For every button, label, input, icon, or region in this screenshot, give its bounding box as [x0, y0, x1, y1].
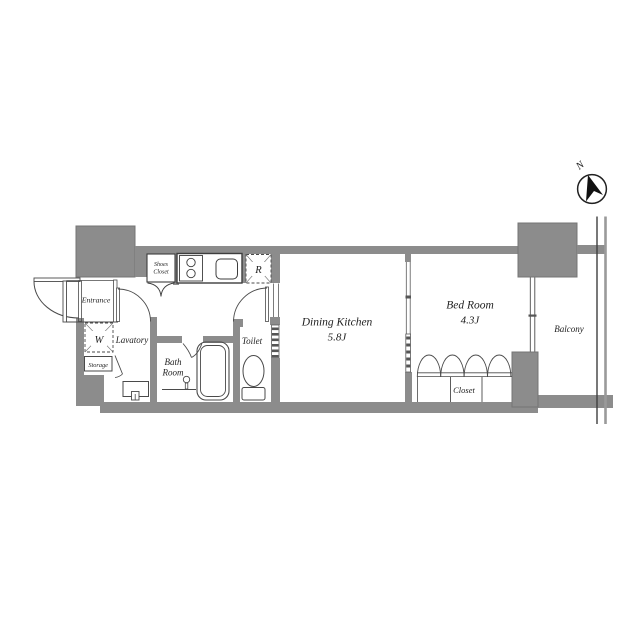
wall-partition-top-block	[405, 254, 411, 262]
label-dining-kitchen-size: 5.8J	[328, 332, 348, 344]
window-tick	[529, 315, 537, 317]
storage-door-leaf	[115, 356, 123, 375]
toilet-door-leaf	[266, 287, 269, 322]
label-washer: W	[95, 335, 105, 346]
closet-folding-door-3	[464, 355, 487, 377]
wall-stub-right	[577, 245, 605, 254]
label-closet: Closet	[453, 385, 475, 395]
bath-faucet-knob	[183, 376, 189, 382]
wall-bottom-balcony	[538, 395, 613, 408]
bath-faucet-stem	[185, 383, 188, 389]
wall-dk-frame-block	[270, 317, 280, 325]
wall-bottom	[100, 402, 538, 413]
compass-north-label: N	[574, 159, 588, 173]
pillar-bottom-right	[512, 352, 538, 407]
wall-bath-toilet	[233, 319, 240, 402]
shoes-closet-door-right	[161, 283, 175, 297]
balcony-window	[529, 278, 537, 352]
pillar-top-right	[518, 223, 577, 277]
wall-bath-top-left	[157, 336, 182, 343]
closet-folding-door-2	[441, 355, 464, 377]
wall-right-of-fridge	[271, 254, 280, 283]
shoes-closet-door-left	[148, 283, 162, 297]
lavatory-door-arc	[118, 289, 151, 322]
label-fridge: R	[254, 265, 262, 276]
label-lavatory: Lavatory	[115, 335, 149, 345]
wall-partition-bottom-block	[405, 372, 412, 402]
wall-toilet-top-stub	[233, 319, 243, 327]
toilet-tank	[242, 388, 265, 401]
compass: N	[574, 159, 607, 203]
bathtub-inner	[201, 346, 226, 397]
bathtub-outer	[197, 342, 229, 400]
label-dining-kitchen: Dining Kitchen	[301, 317, 373, 329]
label-bed-room: Bed Room	[446, 300, 494, 312]
wall-bottom-left-block	[76, 375, 104, 406]
label-storage: Storage	[88, 362, 108, 369]
label-bath-1: Bath	[165, 357, 182, 367]
wall-left	[76, 318, 84, 378]
lavatory-door-leaf	[117, 288, 120, 322]
label-toilet: Toilet	[242, 336, 263, 346]
toilet-door-arc	[234, 288, 268, 322]
closet-folding-door-4	[488, 355, 511, 377]
entrance-west-wall	[63, 281, 67, 322]
label-bath-2: Room	[162, 368, 184, 378]
partition-tick	[406, 296, 412, 299]
storage-door-arc	[115, 374, 123, 378]
dk-bedroom-partition	[406, 262, 412, 372]
floorplan-drawing: N Entrance Lavatory W Storage Shoes Clos…	[0, 0, 640, 640]
label-shoes-closet-2: Closet	[153, 270, 169, 276]
shoes-closet-box	[147, 254, 175, 282]
wall-lavatory-bath	[150, 317, 157, 402]
toilet-bowl	[243, 356, 264, 387]
closet-folding-door-1	[417, 355, 440, 377]
bathroom-door-leaf	[183, 344, 192, 358]
wall-right-of-toilet	[271, 358, 280, 402]
entrance-door-arc	[34, 282, 79, 319]
label-bed-room-size: 4.3J	[461, 315, 481, 327]
floorplan-page: N Entrance Lavatory W Storage Shoes Clos…	[0, 0, 640, 640]
label-entrance: Entrance	[81, 296, 111, 305]
label-shoes-closet-1: Shoes	[154, 262, 169, 268]
pillar-top-left	[76, 226, 135, 277]
entrance-door-lintel	[34, 278, 80, 282]
label-balcony: Balcony	[554, 324, 584, 334]
